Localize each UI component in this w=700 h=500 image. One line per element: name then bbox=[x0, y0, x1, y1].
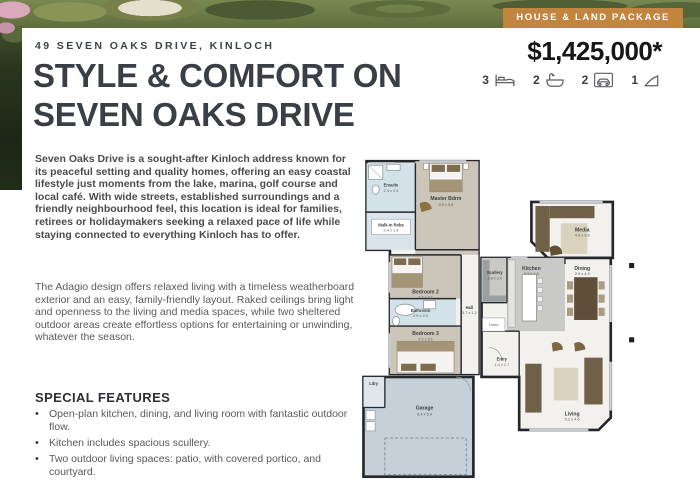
stat-garage: 2 bbox=[582, 72, 615, 88]
media-room bbox=[531, 202, 612, 258]
bullet-icon: • bbox=[35, 453, 49, 479]
bed-icon bbox=[494, 72, 516, 88]
package-badge: HOUSE & LAND PACKAGE bbox=[503, 8, 683, 28]
photo-left-band bbox=[0, 26, 22, 190]
stat-bathrooms: 2 bbox=[533, 72, 565, 88]
living-area-icon bbox=[643, 72, 660, 88]
svg-text:Master Bdrm: Master Bdrm bbox=[430, 196, 462, 202]
svg-text:5.2 x 4.6: 5.2 x 4.6 bbox=[565, 418, 580, 422]
svg-text:3.0 x 3.1: 3.0 x 3.1 bbox=[418, 337, 433, 341]
svg-text:2.9 x 2.0: 2.9 x 2.0 bbox=[413, 314, 428, 318]
svg-text:Linen: Linen bbox=[489, 323, 498, 327]
bathroom-count: 2 bbox=[533, 73, 540, 87]
svg-text:3.2 x 3.1: 3.2 x 3.1 bbox=[418, 296, 433, 300]
svg-text:Entry: Entry bbox=[497, 357, 508, 362]
dining-table bbox=[567, 277, 605, 320]
svg-text:3.7 x 1.2: 3.7 x 1.2 bbox=[462, 311, 477, 315]
page-title: STYLE & COMFORT ON SEVEN OAKS DRIVE bbox=[33, 56, 433, 134]
garage-block bbox=[363, 377, 473, 477]
svg-text:3.9 x 3.5: 3.9 x 3.5 bbox=[438, 203, 453, 207]
floorplan: Ensuite 2.4 x 2.2 Walk-in Robe 2.4 x 1.9… bbox=[356, 148, 662, 494]
svg-text:Ensuite: Ensuite bbox=[384, 183, 399, 188]
special-features-list: •Open-plan kitchen, dining, and living r… bbox=[35, 408, 360, 482]
special-features-title: SPECIAL FEATURES bbox=[35, 390, 170, 405]
feature-text: Open-plan kitchen, dining, and living ro… bbox=[49, 408, 360, 434]
bedroom3-bed bbox=[397, 341, 454, 373]
svg-text:2.9 x 4.3: 2.9 x 4.3 bbox=[575, 272, 590, 276]
stats-row: 3 2 2 bbox=[482, 72, 660, 88]
media-sofa bbox=[535, 206, 549, 252]
feature-item: •Two outdoor living spaces: patio, with … bbox=[35, 453, 360, 479]
media-sofa bbox=[550, 206, 595, 218]
bath-icon bbox=[545, 72, 565, 88]
design-paragraph: The Adagio design offers relaxed living … bbox=[35, 281, 357, 344]
svg-text:2.4 x 2.2: 2.4 x 2.2 bbox=[384, 189, 399, 193]
headline-line-1: STYLE & COMFORT ON bbox=[33, 57, 402, 94]
svg-text:1.4 x 1.7: 1.4 x 1.7 bbox=[494, 363, 509, 367]
svg-text:4.6 x 3.8: 4.6 x 3.8 bbox=[575, 234, 590, 238]
bedroom2-bed bbox=[392, 257, 423, 288]
stat-bedrooms: 3 bbox=[482, 72, 516, 88]
open-plan-area bbox=[482, 258, 611, 430]
intro-paragraph: Seven Oaks Drive is a sought-after Kinlo… bbox=[35, 153, 357, 241]
car-garage-icon bbox=[593, 72, 614, 88]
bush-decor bbox=[0, 20, 22, 46]
kitchen-island bbox=[522, 274, 536, 321]
bullet-icon: • bbox=[35, 437, 49, 450]
svg-text:Walk-in Robe: Walk-in Robe bbox=[378, 222, 404, 227]
svg-text:Bathroom: Bathroom bbox=[411, 308, 431, 313]
feature-item: •Kitchen includes spacious scullery. bbox=[35, 437, 360, 450]
garage-count: 2 bbox=[582, 73, 589, 87]
svg-text:Scullery: Scullery bbox=[487, 270, 504, 275]
svg-text:6.4 x 5.9: 6.4 x 5.9 bbox=[417, 413, 432, 417]
address-eyebrow: 49 SEVEN OAKS DRIVE, KINLOCH bbox=[35, 40, 274, 52]
headline-line-2: SEVEN OAKS DRIVE bbox=[33, 96, 355, 133]
portico-post bbox=[629, 263, 634, 268]
stat-living-areas: 1 bbox=[631, 72, 660, 88]
bullet-icon: • bbox=[35, 408, 49, 434]
bedroom-count: 3 bbox=[482, 73, 489, 87]
portico-post bbox=[629, 337, 634, 342]
feature-text: Two outdoor living spaces: patio, with c… bbox=[49, 453, 360, 479]
feature-item: •Open-plan kitchen, dining, and living r… bbox=[35, 408, 360, 434]
price-label: $1,425,000* bbox=[527, 36, 662, 67]
svg-text:Garage: Garage bbox=[416, 406, 434, 412]
living-area-count: 1 bbox=[631, 73, 638, 87]
svg-text:1.8 x 2.0: 1.8 x 2.0 bbox=[487, 276, 502, 280]
feature-text: Kitchen includes spacious scullery. bbox=[49, 437, 210, 450]
brochure-page: HOUSE & LAND PACKAGE 49 SEVEN OAKS DRIVE… bbox=[0, 0, 700, 500]
svg-text:Ldry: Ldry bbox=[369, 381, 379, 386]
svg-text:2.4 x 1.9: 2.4 x 1.9 bbox=[384, 228, 399, 232]
svg-text:Hall: Hall bbox=[466, 305, 473, 310]
svg-text:3.0 x 4.3: 3.0 x 4.3 bbox=[524, 272, 539, 276]
